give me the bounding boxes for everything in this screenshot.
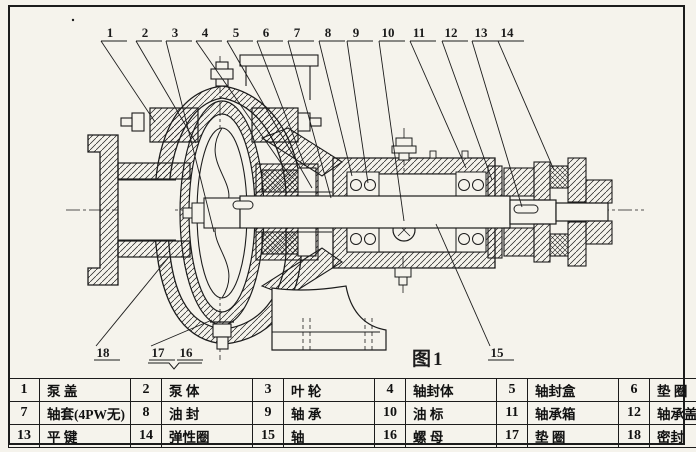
part-number-cell: 14 [131, 425, 162, 448]
part-name-cell: 螺 母 [406, 425, 497, 448]
part-name-cell: 油 标 [406, 402, 497, 425]
part-number-cell: 5 [497, 379, 528, 402]
part-name-cell: 叶 轮 [284, 379, 375, 402]
part-name-cell: 垫 圈 [650, 379, 696, 402]
parts-table-row-2: 7轴套(4PW无)8油 封9轴 承10油 标11轴承箱12轴承盖 [9, 402, 696, 425]
parts-list-table: 1泵 盖2泵 体3叶 轮4轴封体5轴封盒6垫 圈7轴套(4PW无)8油 封9轴 … [8, 378, 696, 448]
part-number-cell: 10 [375, 402, 406, 425]
part-number-cell: 7 [9, 402, 40, 425]
part-number-cell: 13 [9, 425, 40, 448]
part-name-cell: 轴 承 [284, 402, 375, 425]
part-name-cell: 轴套(4PW无) [40, 402, 131, 425]
part-name-cell: 轴封体 [406, 379, 497, 402]
part-name-cell: 轴承盖 [650, 402, 696, 425]
part-name-cell: 密封 [650, 425, 696, 448]
parts-table-row-3: 13平 键14弹性圈15轴16螺 母17垫 圈18密封 [9, 425, 696, 448]
part-number-cell: 6 [619, 379, 650, 402]
part-name-cell: 轴承箱 [528, 402, 619, 425]
part-name-cell: 油 封 [162, 402, 253, 425]
part-name-cell: 垫 圈 [528, 425, 619, 448]
part-number-cell: 15 [253, 425, 284, 448]
part-number-cell: 9 [253, 402, 284, 425]
part-name-cell: 泵 体 [162, 379, 253, 402]
part-number-cell: 16 [375, 425, 406, 448]
part-number-cell: 12 [619, 402, 650, 425]
parts-table-row-1: 1泵 盖2泵 体3叶 轮4轴封体5轴封盒6垫 圈 [9, 379, 696, 402]
part-name-cell: 轴封盒 [528, 379, 619, 402]
engineering-drawing-page: 123456789101112131418171615 图1 1泵 盖2泵 体3… [0, 0, 696, 452]
part-number-cell: 8 [131, 402, 162, 425]
part-number-cell: 2 [131, 379, 162, 402]
part-name-cell: 弹性圈 [162, 425, 253, 448]
part-number-cell: 3 [253, 379, 284, 402]
part-number-cell: 4 [375, 379, 406, 402]
part-number-cell: 11 [497, 402, 528, 425]
part-number-cell: 1 [9, 379, 40, 402]
part-name-cell: 泵 盖 [40, 379, 131, 402]
part-number-cell: 17 [497, 425, 528, 448]
part-name-cell: 轴 [284, 425, 375, 448]
part-name-cell: 平 键 [40, 425, 131, 448]
part-number-cell: 18 [619, 425, 650, 448]
